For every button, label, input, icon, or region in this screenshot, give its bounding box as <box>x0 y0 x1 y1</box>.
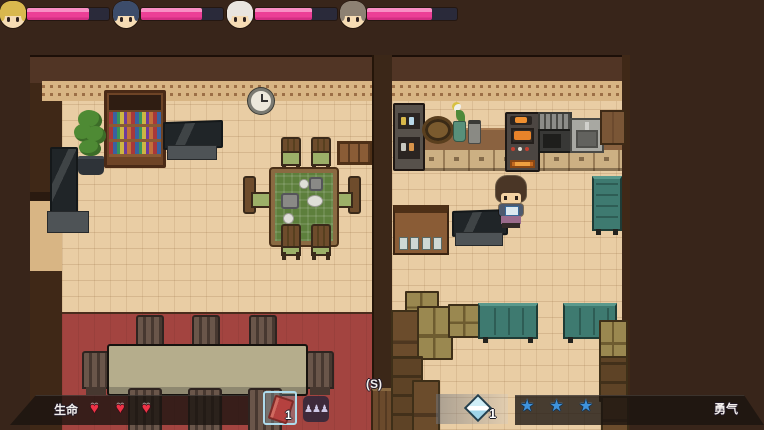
heart-icon: ♥ <box>90 401 99 416</box>
plant-pot <box>78 156 104 175</box>
plate-icon <box>283 213 294 224</box>
hotbar-slot-2[interactable]: ♟♟♟ <box>303 396 329 422</box>
faucet-icon <box>585 122 589 130</box>
room-divider-wall <box>372 55 392 430</box>
potted-plant <box>74 110 108 174</box>
plate-icon <box>307 195 323 207</box>
cup-icon <box>299 179 309 189</box>
book-row <box>109 112 161 127</box>
stove <box>505 112 540 172</box>
pot-icon <box>309 177 323 191</box>
hair <box>113 1 139 16</box>
star-icon: ★ <box>579 399 593 415</box>
hp-bar-3 <box>255 8 337 20</box>
left-room-wall-top <box>30 55 372 83</box>
player-character <box>495 176 527 228</box>
hotbar-slot-1-count: 1 <box>285 408 292 422</box>
upper-cabinet <box>600 110 626 145</box>
courage-label: 勇气 <box>714 400 738 417</box>
teal-shelf <box>592 176 622 231</box>
side-tv <box>50 147 78 217</box>
star-icon: ★ <box>549 399 563 415</box>
party-portrait-2 <box>113 1 139 28</box>
key-hint: (S) <box>366 377 382 391</box>
hp-bar-2 <box>141 8 223 20</box>
dining-chair-bottom-right <box>310 224 332 260</box>
sofa-1 <box>478 303 538 339</box>
life-label: 生命 <box>54 401 78 418</box>
meeting-chair-top-2 <box>192 315 220 347</box>
heart-icon: ♥ <box>116 401 125 416</box>
hair <box>340 1 366 16</box>
book-row <box>109 127 161 142</box>
game-viewport: (S) 生命 ♥♥♥ 1 ♟♟♟ 1 ★★★ 勇气 <box>0 0 764 430</box>
meeting-chair-left-end <box>82 351 110 389</box>
flame-icon <box>515 117 527 123</box>
gem-count: 1 <box>489 406 496 421</box>
barrel <box>448 304 482 338</box>
tv2-stand <box>455 232 503 246</box>
held-item <box>505 206 519 216</box>
hair <box>0 1 26 16</box>
meeting-chair-top-3 <box>249 315 277 347</box>
wall-clock-icon <box>248 88 274 114</box>
book-row <box>109 142 161 157</box>
sink <box>570 118 604 153</box>
party-portrait-3 <box>227 1 253 28</box>
side-tv-stand <box>47 211 89 233</box>
stars: ★★★ <box>520 399 593 415</box>
hp-bar-1 <box>27 8 109 20</box>
meeting-chair-top-1 <box>136 315 164 347</box>
heart-icon: ♥ <box>142 401 151 416</box>
bookshelf <box>104 90 166 168</box>
sideboard <box>393 205 449 255</box>
fridge <box>393 103 425 171</box>
party-portrait-4 <box>340 1 366 28</box>
grinder <box>468 120 481 144</box>
dining-chair-left <box>243 176 269 218</box>
wall-shelf <box>337 141 373 165</box>
team-figures-icon: ♟♟♟ <box>304 404 328 415</box>
pot-icon <box>281 193 299 209</box>
hair <box>227 1 253 16</box>
party-portrait-1 <box>0 1 26 28</box>
hearts: ♥♥♥ <box>90 401 151 416</box>
tv-stand <box>167 145 217 160</box>
left-room-wallpaper <box>42 81 372 101</box>
right-room-wallpaper <box>392 81 622 101</box>
dining-chair-bottom-left <box>280 224 302 260</box>
meeting-chair-right-end <box>306 351 334 389</box>
right-room-wall-top <box>392 55 622 83</box>
hp-bar-4 <box>367 8 457 20</box>
star-icon: ★ <box>520 399 534 415</box>
microwave <box>538 129 572 153</box>
flower-vase <box>450 102 466 142</box>
